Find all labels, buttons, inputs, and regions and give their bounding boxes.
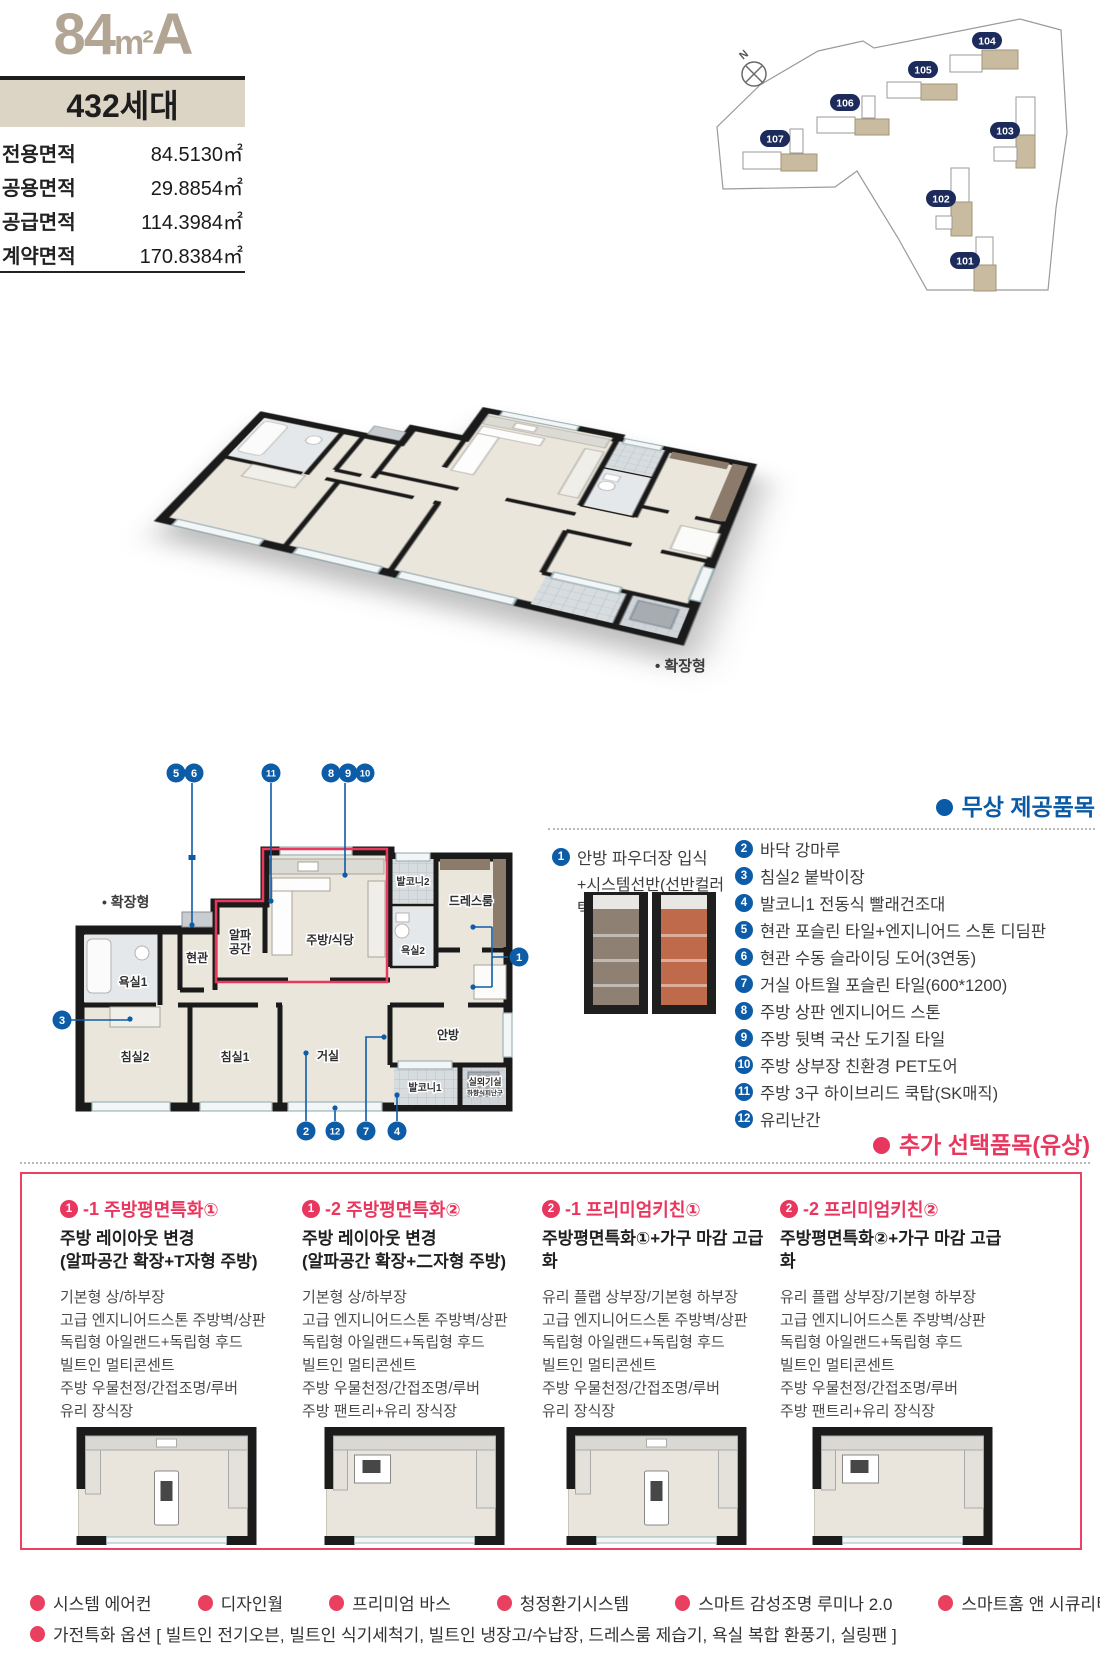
red-bullet-icon: [675, 1595, 690, 1611]
household-count-badge: 432세대: [0, 80, 245, 127]
free-item: 4발코니1 전동식 빨래건조대: [735, 889, 1100, 916]
dotted-divider: [548, 828, 1095, 830]
footer-option: 시스템 에어컨: [30, 1590, 152, 1615]
floor-plan-3d: [75, 322, 798, 689]
free-item: 10주방 상부장 친환경 PET도어: [735, 1051, 1100, 1078]
item-number-badge: 9: [735, 1029, 753, 1047]
blue-dot-icon: [936, 799, 953, 816]
unit-type-title: 84m²A: [0, 4, 245, 74]
room-label-kitchen: 주방/식당: [306, 932, 354, 947]
building-number: 104: [978, 36, 996, 48]
svg-text:1: 1: [516, 952, 522, 964]
room-label-alpha-1: 알파: [229, 927, 251, 942]
building-number: 106: [836, 98, 854, 110]
building-number: 107: [766, 134, 784, 146]
svg-text:11: 11: [266, 769, 277, 780]
footer-option: 디자인월: [198, 1590, 284, 1615]
area-value: 29.8854㎡: [151, 172, 243, 201]
building-103: 103: [990, 97, 1035, 168]
room-label-balcony1: 발코니1: [408, 1081, 442, 1094]
free-item: 7거실 아트월 포슬린 타일(600*1200): [735, 970, 1100, 997]
item-number-badge: 5: [735, 921, 753, 939]
item-number-badge: 2: [735, 840, 753, 858]
room-label-entry: 현관: [186, 950, 208, 965]
marker-9: 9: [339, 764, 358, 783]
paid-section-title: 추가 선택품목(유상): [20, 1126, 1090, 1160]
kitchen-thumbnail-t-type: [74, 1427, 259, 1545]
free-item: 3침실2 붙박이장: [735, 862, 1100, 889]
marker-3: 3: [53, 1011, 72, 1030]
unit-type-number: 84: [54, 2, 115, 67]
red-dot-icon: [873, 1137, 890, 1154]
option-number-badge: 1: [60, 1200, 78, 1218]
floor-plan-3d-area: [150, 252, 770, 692]
unit-type-variant: A: [152, 2, 192, 67]
room-label-bath2: 욕실2: [401, 944, 425, 957]
building-101: 101: [950, 237, 996, 291]
svg-text:8: 8: [328, 768, 334, 780]
paid-option-1-2: 1-2주방평면특화② 주방 레이아웃 변경(알파공간 확장+二자형 주방) 기본…: [302, 1196, 530, 1424]
area-row: 공급면적114.3984㎡: [0, 203, 245, 237]
svg-text:3: 3: [59, 1015, 65, 1027]
area-label: 계약면적: [2, 240, 76, 269]
room-note-evacuation: 하향식피난구: [467, 1088, 503, 1097]
option-number-badge: 2: [542, 1200, 560, 1218]
building-number: 102: [932, 194, 950, 206]
compass-icon: N: [737, 48, 766, 86]
svg-text:6: 6: [191, 768, 197, 780]
footer-option: 프리미엄 바스: [329, 1590, 451, 1615]
option-number-badge: 2: [780, 1200, 798, 1218]
svg-text:9: 9: [345, 768, 351, 780]
kitchen-thumbnail-line-type: [322, 1427, 507, 1545]
item-number-badge: 7: [735, 975, 753, 993]
building-105: 105: [887, 61, 957, 100]
area-row: 공용면적29.8854㎡: [0, 169, 245, 203]
red-bullet-icon: [30, 1595, 45, 1611]
item-number-badge: 10: [735, 1056, 753, 1074]
kitchen-thumbnail-t-type: [564, 1427, 749, 1545]
free-item: 2바닥 강마루: [735, 835, 1100, 862]
free-item: 6현관 수동 슬라이딩 도어(3연동): [735, 943, 1100, 970]
iso-plan-caption: • 확장형: [655, 655, 706, 676]
item-number-badge: 4: [735, 894, 753, 912]
red-bullet-icon: [198, 1595, 213, 1611]
item-number-badge: 12: [735, 1110, 753, 1128]
area-label: 공급면적: [2, 206, 76, 235]
footer-appliance-row: 가전특화 옵션 [ 빌트인 전기오븐, 빌트인 식기세척기, 빌트인 냉장고/수…: [30, 1621, 1080, 1646]
area-label: 공용면적: [2, 172, 76, 201]
room-label-master: 안방: [437, 1027, 459, 1042]
marker-1: 1: [510, 948, 529, 967]
shelf-color-photos: [584, 892, 716, 1014]
building-106: 106: [817, 94, 889, 135]
room-label-bedroom1: 침실1: [221, 1049, 250, 1064]
room-label-dressroom: 드레스룸: [449, 893, 493, 908]
item-number-badge: 3: [735, 867, 753, 885]
red-bullet-icon: [497, 1595, 512, 1611]
building-number: 105: [914, 65, 932, 77]
paid-option-2-2: 2-2프리미엄키친② 주방평면특화②+가구 마감 고급화 유리 플랩 상부장/기…: [780, 1196, 1008, 1424]
footer-option: 스마트홈 앤 시큐리티: [938, 1590, 1100, 1615]
north-label: N: [737, 48, 751, 62]
building-number: 101: [956, 256, 974, 268]
free-section-title: 무상 제공품목: [548, 788, 1095, 822]
marker-8: 8: [322, 764, 341, 783]
plan-caption: • 확장형: [102, 894, 149, 910]
free-items-list: 2바닥 강마루 3침실2 붙박이장 4발코니1 전동식 빨래건조대 5현관 포슬…: [735, 835, 1100, 1132]
building-107: 107: [743, 129, 817, 171]
paid-option-1-1: 1-1주방평면특화① 주방 레이아웃 변경(알파공간 확장+T자형 주방) 기본…: [60, 1196, 288, 1424]
marker-11: 11: [262, 764, 281, 783]
room-label-living: 거실: [317, 1048, 339, 1063]
free-item-label: 안방 파우더장 입식: [577, 845, 708, 869]
red-bullet-icon: [329, 1595, 344, 1611]
area-table: 전용면적84.5130㎡ 공용면적29.8854㎡ 공급면적114.3984㎡ …: [0, 135, 245, 273]
floor-plan-2d: • 확장형 발코니2 드레스룸 현관 알파 공간 주방/식당 욕실2 욕실1 침…: [30, 755, 530, 1155]
footer-option: 스마트 감성조명 루미나 2.0: [675, 1590, 892, 1615]
marker-6: 6: [185, 764, 204, 783]
area-row: 전용면적84.5130㎡: [0, 135, 245, 169]
item-number-badge: 11: [735, 1083, 753, 1101]
site-map: N 104 105 106 107 103 102 101: [650, 0, 1100, 292]
unit-type-sqm: m²: [114, 24, 152, 62]
area-label: 전용면적: [2, 138, 76, 167]
shelf-color-option-photo: [652, 892, 716, 1014]
dotted-divider: [20, 1162, 1090, 1164]
area-value: 170.8384㎡: [140, 240, 243, 269]
svg-text:10: 10: [360, 769, 371, 780]
building-102: 102: [926, 168, 972, 236]
brochure-page: 84m²A 432세대 전용면적84.5130㎡ 공용면적29.8854㎡ 공급…: [0, 0, 1100, 1675]
area-value: 114.3984㎡: [141, 206, 243, 235]
footer-appliance-option: 가전특화 옵션 [ 빌트인 전기오븐, 빌트인 식기세척기, 빌트인 냉장고/수…: [30, 1621, 897, 1646]
paid-options-box: 1-1주방평면특화① 주방 레이아웃 변경(알파공간 확장+T자형 주방) 기본…: [20, 1172, 1082, 1550]
red-bullet-icon: [938, 1595, 953, 1611]
unit-spec-block: 84m²A 432세대 전용면적84.5130㎡ 공용면적29.8854㎡ 공급…: [0, 4, 245, 273]
item-number-badge: 8: [735, 1002, 753, 1020]
item-number-badge: 6: [735, 948, 753, 966]
room-label-alpha-2: 공간: [229, 941, 251, 956]
free-item: 9주방 뒷벽 국산 도기질 타일: [735, 1024, 1100, 1051]
building-104: 104: [950, 32, 1018, 72]
kitchen-thumbnail-line-type: [810, 1427, 995, 1545]
free-item: 5현관 포슬린 타일+엔지니어드 스톤 디딤판: [735, 916, 1100, 943]
area-value: 84.5130㎡: [151, 138, 243, 167]
building-number: 103: [996, 126, 1014, 138]
red-bullet-icon: [30, 1626, 45, 1642]
shelf-color-option-photo: [584, 892, 648, 1014]
room-label-bedroom2: 침실2: [121, 1049, 150, 1064]
room-label-outdoor-unit: 실외기실: [468, 1076, 501, 1087]
footer-option: 청정환기시스템: [497, 1590, 629, 1615]
area-row: 계약면적170.8384㎡: [0, 237, 245, 271]
free-item: 11주방 3구 하이브리드 쿡탑(SK매직): [735, 1078, 1100, 1105]
footer-options-row: 시스템 에어컨 디자인월 프리미엄 바스 청정환기시스템 스마트 감성조명 루미…: [30, 1590, 1080, 1615]
option-number-badge: 1: [302, 1200, 320, 1218]
free-item: 8주방 상판 엔지니어드 스톤: [735, 997, 1100, 1024]
svg-text:5: 5: [173, 768, 179, 780]
paid-option-2-1: 2-1프리미엄키친① 주방평면특화①+가구 마감 고급화 유리 플랩 상부장/기…: [542, 1196, 770, 1424]
marker-5: 5: [167, 764, 186, 783]
room-label-balcony2: 발코니2: [396, 875, 430, 888]
item-number-badge: 1: [552, 848, 570, 866]
room-label-bath1: 욕실1: [119, 974, 148, 989]
marker-10: 10: [356, 764, 375, 783]
